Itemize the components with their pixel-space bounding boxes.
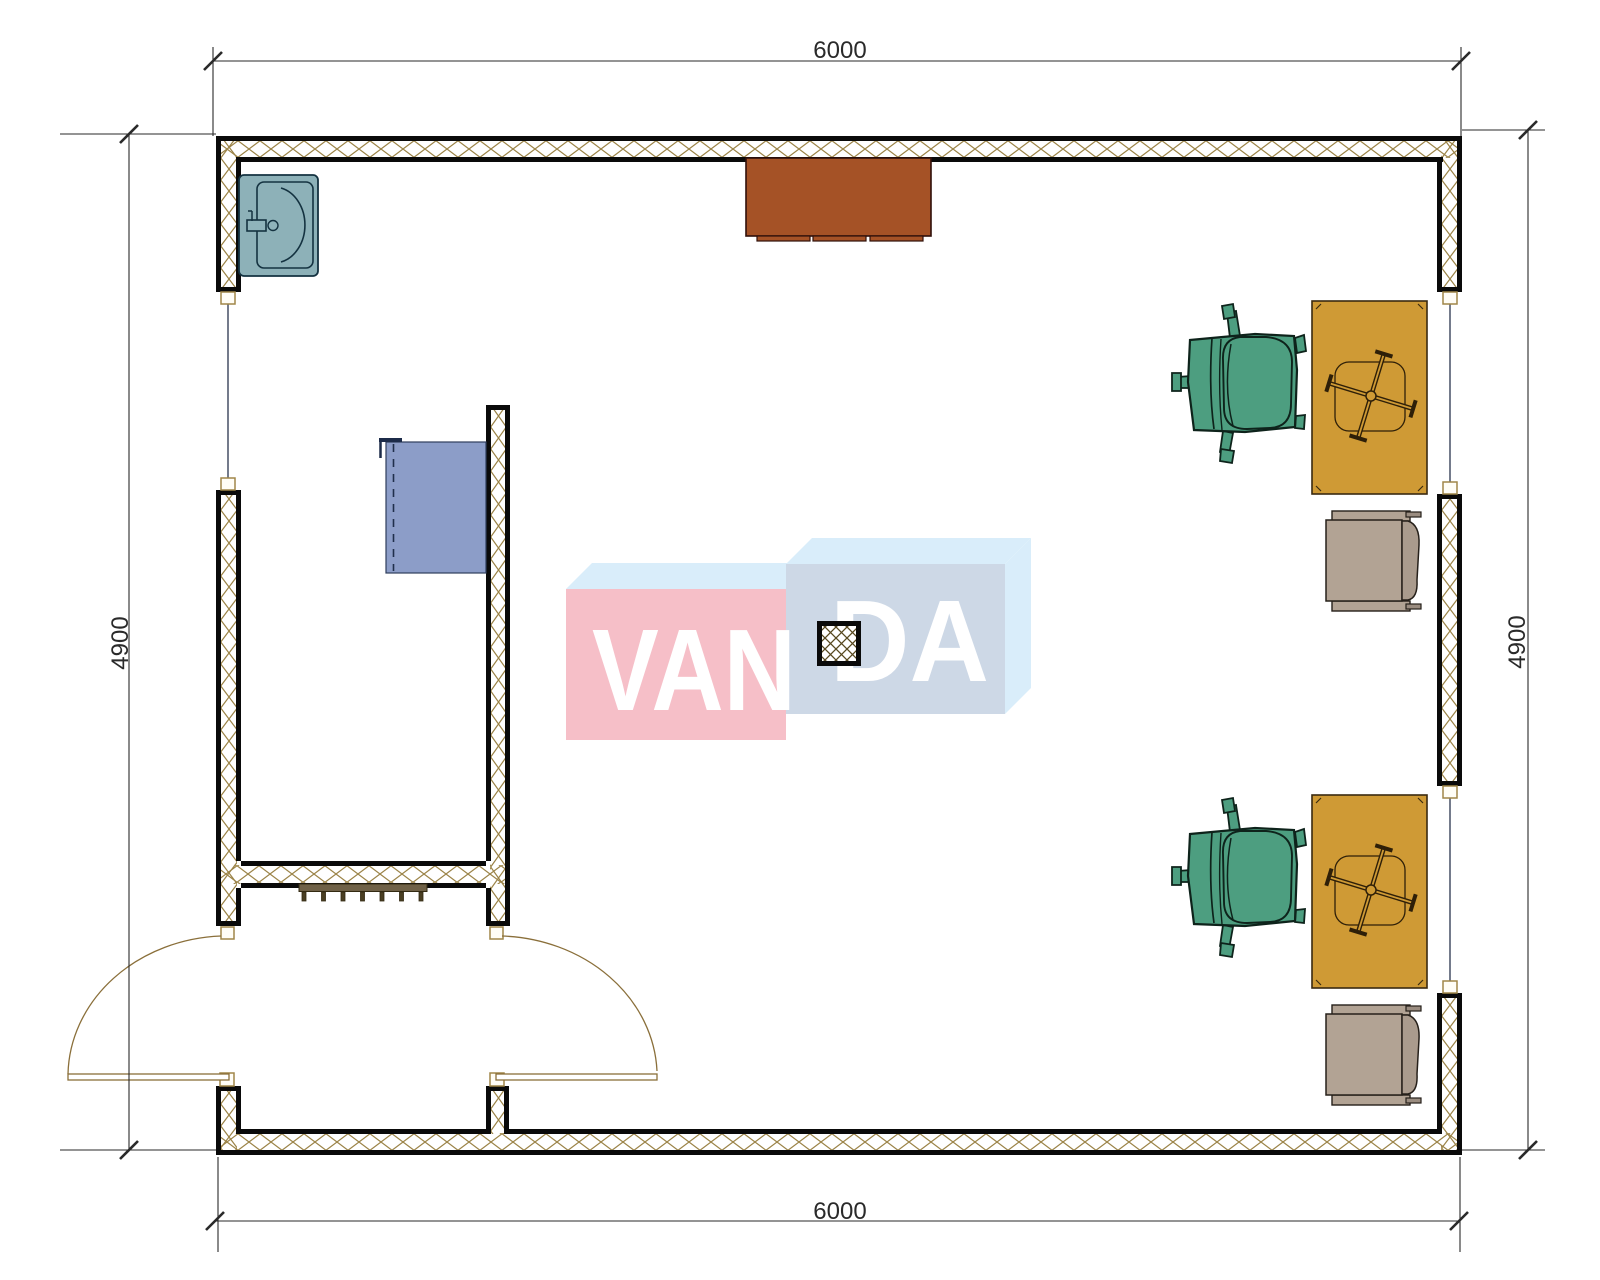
svg-text:6000: 6000 <box>813 1198 866 1225</box>
svg-text:4900: 4900 <box>1504 615 1531 668</box>
svg-text:6000: 6000 <box>813 37 866 64</box>
svg-text:VAN: VAN <box>592 605 796 735</box>
svg-text:4900: 4900 <box>107 616 134 669</box>
